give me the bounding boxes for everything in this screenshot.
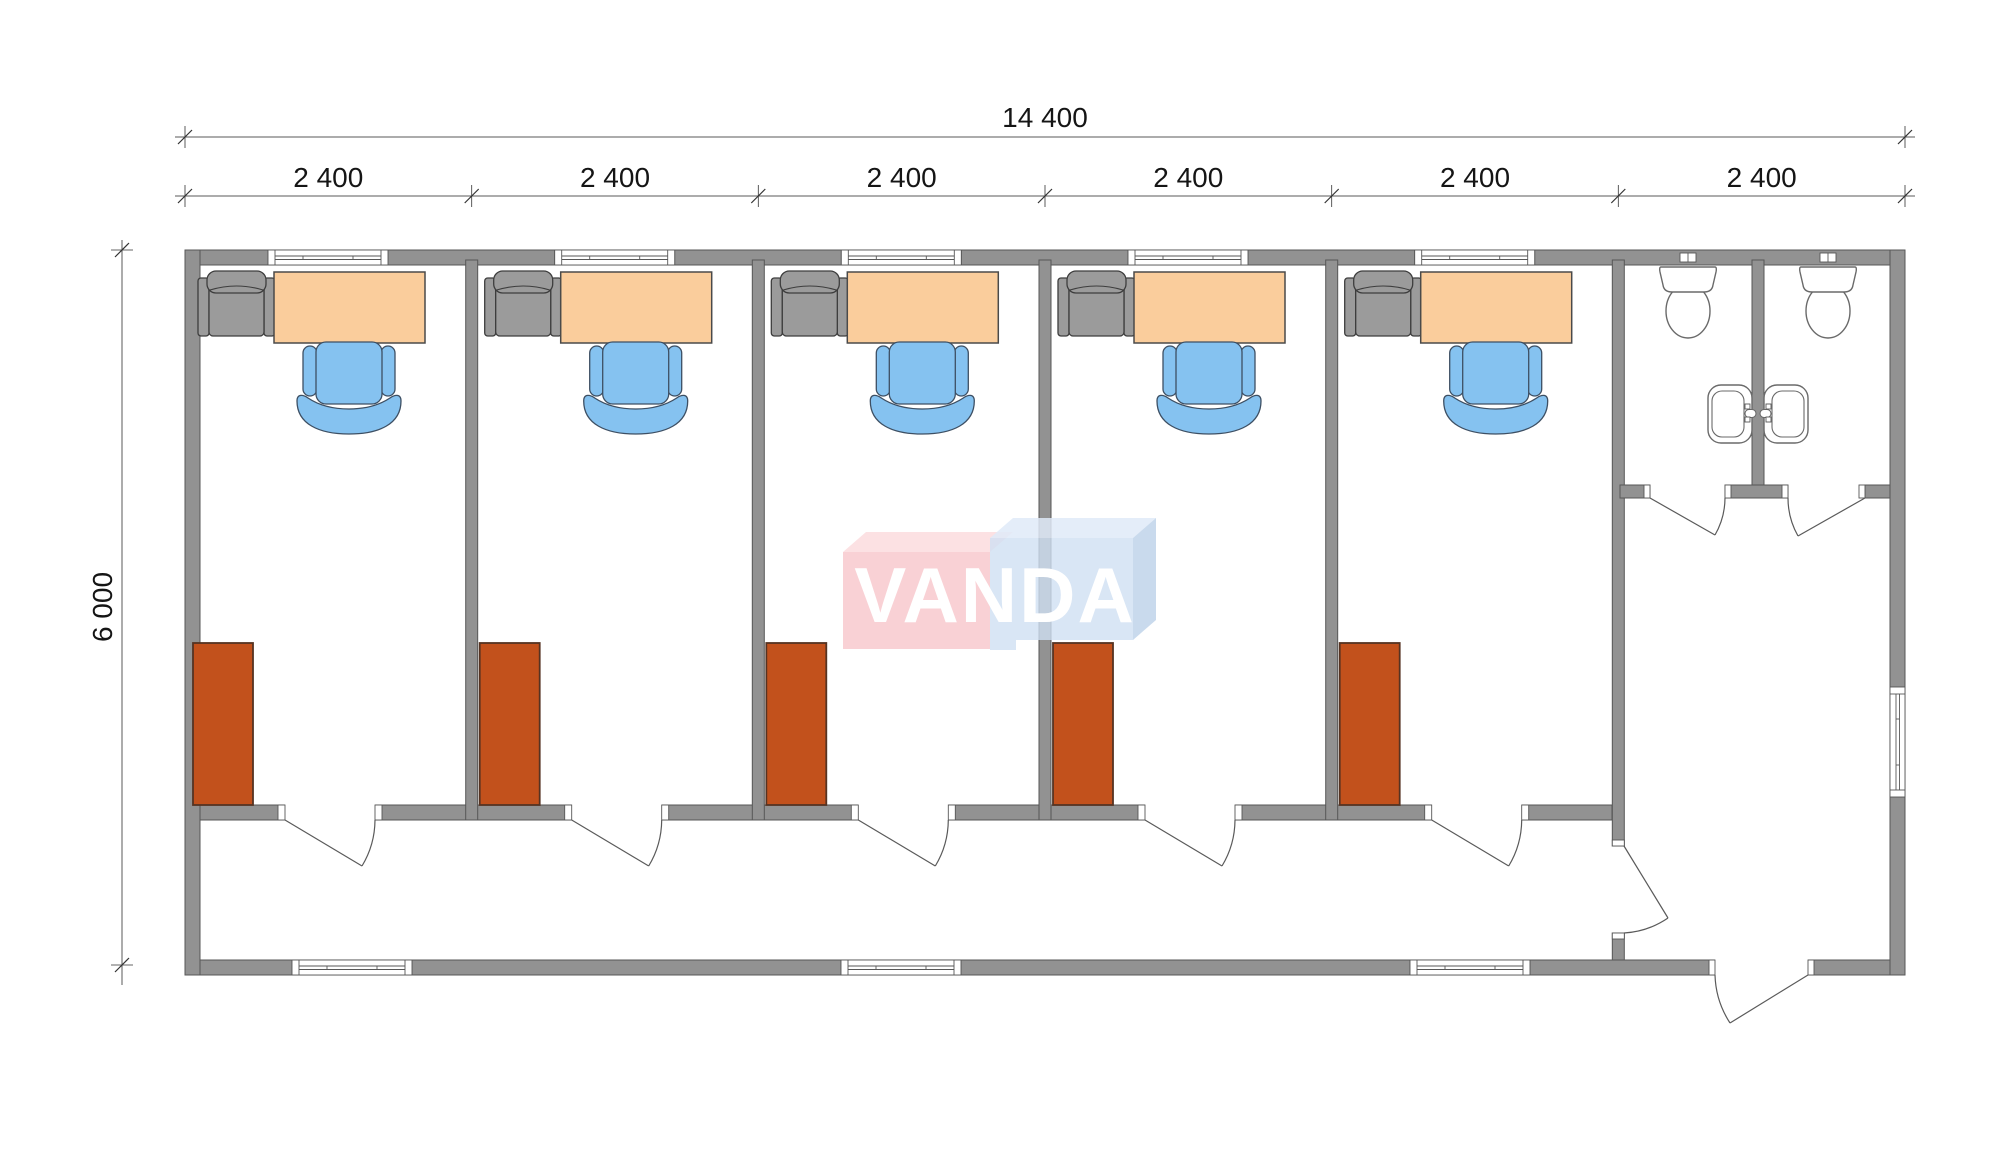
corridor-window-2 [841,960,961,975]
dimension-segment-6: 2 400 [1727,162,1797,193]
sanitary-wall-upper [1612,260,1624,846]
corridor-window-3 [1410,960,1530,975]
floor-plan-sheet: 14 400 2 400 2 400 2 400 2 400 2 400 2 4… [0,0,2000,1172]
office-room-5 [1340,250,1572,866]
wc-door-2 [1782,485,1865,536]
logo-blue-side-face [1133,518,1156,640]
wc-vent-window-2 [1820,253,1836,262]
partition-wall-2 [752,260,764,820]
entrance-opening [1715,958,1808,977]
dimension-segment-5: 2 400 [1440,162,1510,193]
washbasin-1 [1708,385,1756,443]
logo-pink-top-face [843,532,1013,552]
dimension-segment-2: 2 400 [580,162,650,193]
wc-wall-segment [1725,485,1788,498]
office-room-2 [480,250,712,866]
dimension-segment-4: 2 400 [1153,162,1223,193]
exterior-wall-left [185,250,200,975]
floor-plan: 14 400 2 400 2 400 2 400 2 400 2 400 2 4… [0,0,2000,1172]
office-room-1 [193,250,425,866]
logo-blue-tab [990,640,1016,650]
wc-door-1 [1644,485,1731,535]
partition-wall-1 [466,260,478,820]
corridor-window-1 [292,960,412,975]
exterior-wall-bottom [185,960,1905,975]
dimension-segment-1: 2 400 [293,162,363,193]
wc-vent-window-1 [1680,253,1696,262]
toilet-2 [1800,267,1857,338]
dimension-segment-3: 2 400 [867,162,937,193]
entry-room-window [1890,687,1905,797]
sanitary-block [1612,267,1865,1023]
washbasin-2 [1760,385,1808,443]
logo-blue-top-face [990,518,1156,538]
wc-wall-segment [1865,485,1890,498]
wc-partition-wall [1752,260,1764,498]
exterior-wall-right [1890,250,1905,975]
brand-text: VANDA [854,551,1136,639]
vestibule-door [1612,840,1668,939]
dimension-total-width: 14 400 [1002,102,1088,133]
toilet-1 [1660,267,1717,338]
partition-wall-4 [1326,260,1338,820]
vanda-watermark: VANDA [843,518,1156,650]
dimension-height: 6 000 [87,572,118,642]
entrance-door [1715,975,1808,1023]
